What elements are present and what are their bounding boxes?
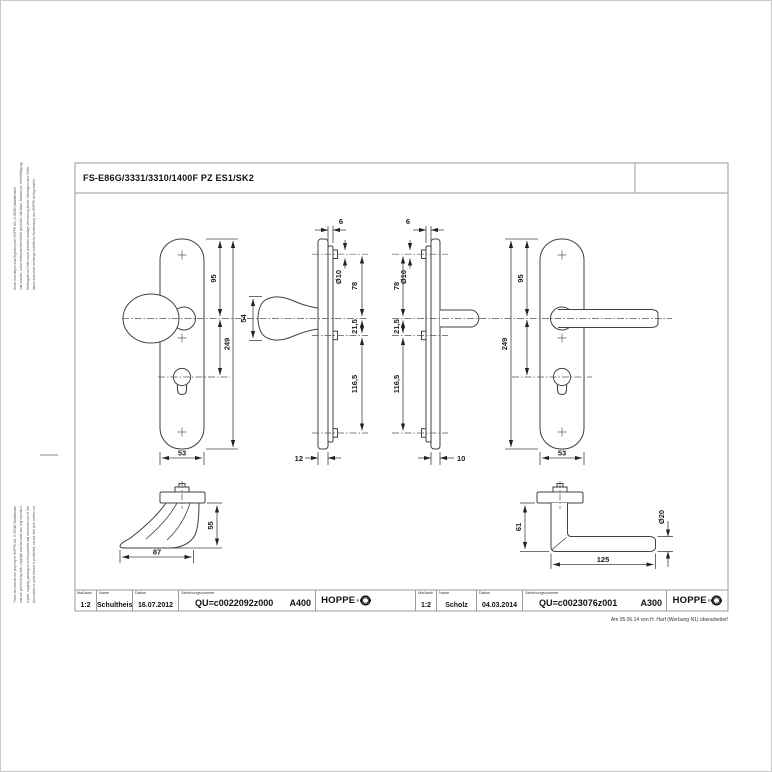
drawing-title: FS-E86G/3331/3310/1400F PZ ES1/SK2 [83, 173, 254, 183]
dim-right-handle-to-screw: 21,5 [392, 319, 401, 334]
name-value: Schultheis [97, 602, 132, 609]
dim-lever-length: 125 [597, 555, 610, 564]
drawing-number-label: Zeichnungsnummer [181, 591, 215, 595]
dimension-labels: 95 249 53 54 6 Ø10 78 21,5 116,5 12 6 Ø1… [153, 217, 666, 564]
date-cell: Datum 04.03.2014 [476, 590, 522, 611]
registered-mark: ® [708, 599, 711, 603]
plate-edge [160, 492, 205, 503]
dim-plate-top-to-lever: 95 [516, 274, 525, 282]
name-label: Name [99, 591, 109, 595]
name-cell: Name Schultheis [96, 590, 132, 611]
dim-plate-width-left: 53 [178, 449, 186, 458]
copyright-note-german: Diese Unterlagen sind Eigentum der HOPPE… [12, 160, 38, 290]
plate-body [318, 239, 328, 449]
title-block-left: Maßstab 1:2 Name Schultheis Datum 16.07.… [75, 590, 376, 611]
right-plate-profile-view [422, 239, 479, 449]
dim-knob-projection: 55 [206, 521, 215, 529]
date-cell: Datum 16.07.2012 [132, 590, 178, 611]
dim-left-plate-thickness: 12 [295, 454, 303, 463]
copyright-note-english: These documents are property of HOPPE AG… [12, 506, 38, 603]
knob-side-detail-view [120, 484, 205, 549]
name-label: Name [439, 591, 449, 595]
hoppe-logo-icon [711, 595, 722, 606]
dim-right-screw-to-handle: 78 [392, 282, 401, 290]
dim-left-screw-to-handle: 78 [350, 282, 359, 290]
dim-knob-length: 87 [153, 548, 161, 557]
name-value: Scholz [437, 602, 476, 609]
scale-value: 1:2 [416, 602, 436, 609]
hoppe-logo-icon [360, 595, 371, 606]
plate-flange [426, 246, 431, 442]
scale-cell: Maßstab 1:2 [75, 590, 96, 611]
dim-plate-height-right: 249 [500, 338, 509, 351]
drawing-number-cell: Zeichnungsnummer QU=c0023076z001 A300 [522, 590, 666, 611]
drawing-sheet: 95 249 53 54 6 Ø10 78 21,5 116,5 12 6 Ø1… [0, 0, 772, 772]
drawing-number-value: QU=c0022092z000 [195, 598, 273, 608]
plate-flange [328, 246, 333, 442]
name-cell: Name Scholz [436, 590, 476, 611]
lever-plate-front-view [540, 239, 658, 449]
scale-label: Maßstab [418, 591, 433, 595]
drawing-title-bar: FS-E86G/3331/3310/1400F PZ ES1/SK2 [76, 164, 641, 192]
drawing-number-label: Zeichnungsnummer [525, 591, 559, 595]
plate-body [431, 239, 440, 449]
hoppe-wordmark: HOPPE [673, 595, 707, 606]
knob-body [120, 503, 199, 548]
knob-plate-front-view [123, 239, 204, 449]
dim-right-flange: 6 [406, 217, 410, 226]
drawing-number-cell: Zeichnungsnummer QU=c0022092z000 A400 [178, 590, 315, 611]
lever-arm [551, 503, 656, 552]
date-label: Datum [479, 591, 490, 595]
brand-cell: HOPPE® [666, 590, 728, 611]
scale-value: 1:2 [75, 602, 96, 609]
dim-right-plate-thickness: 10 [457, 454, 465, 463]
lever-top-detail-view [537, 484, 656, 552]
sheet-code: A400 [289, 598, 311, 608]
dim-plate-width-right: 53 [558, 449, 566, 458]
scale-label: Maßstab [77, 591, 92, 595]
dim-plate-height-left: 249 [223, 338, 232, 351]
dim-left-screw-spacing: 116,5 [350, 375, 359, 393]
title-block-right: Maßstab 1:2 Name Scholz Datum 04.03.2014… [415, 590, 728, 611]
dim-left-flange: 6 [339, 217, 343, 226]
brand-cell: HOPPE® [315, 590, 376, 611]
hoppe-wordmark: HOPPE [321, 595, 355, 606]
dim-right-screw-spacing: 116,5 [392, 375, 401, 393]
date-value: 16.07.2012 [133, 602, 178, 609]
revision-note: Am 05.06.14 von H. Harf (Werbung N1) übe… [400, 617, 728, 623]
dim-lever-grip-diameter: Ø20 [657, 510, 666, 524]
dim-knob-height: 54 [239, 314, 248, 323]
date-label: Datum [135, 591, 146, 595]
dim-left-handle-to-screw: 21,5 [350, 319, 359, 334]
registered-mark: ® [356, 599, 359, 603]
scale-cell: Maßstab 1:2 [415, 590, 436, 611]
dim-lever-projection: 61 [514, 523, 523, 531]
dim-plate-top-to-handle: 95 [209, 274, 218, 282]
drawing-number-value: QU=c0023076z001 [539, 598, 617, 608]
technical-drawing-canvas: 95 249 53 54 6 Ø10 78 21,5 116,5 12 6 Ø1… [0, 0, 772, 772]
dim-left-boss-diameter: Ø10 [334, 270, 343, 284]
sheet-code: A300 [640, 598, 662, 608]
date-value: 04.03.2014 [477, 602, 522, 609]
